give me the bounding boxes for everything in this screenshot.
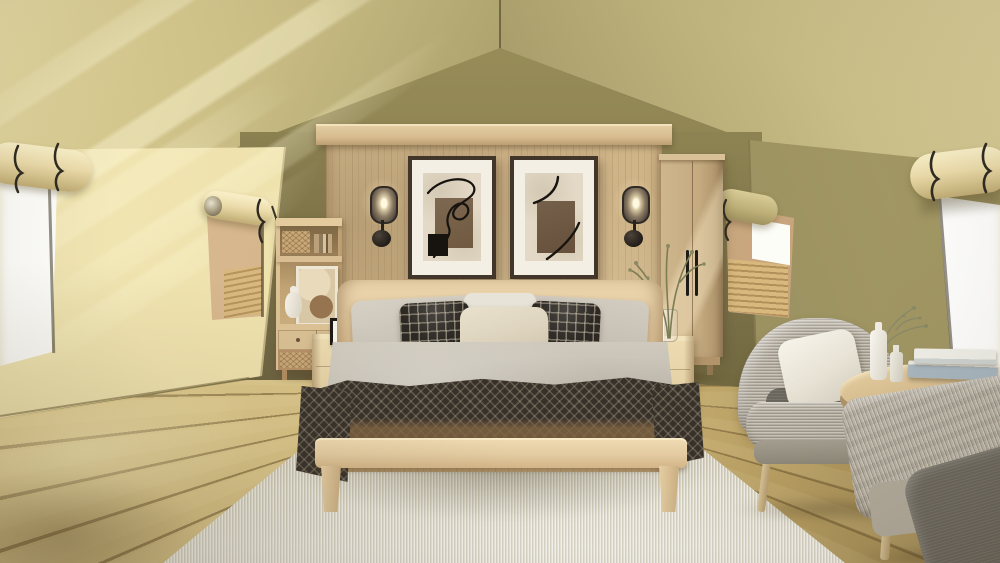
- art-right-arcs: [525, 173, 583, 261]
- flap-roll-end-cap: [204, 196, 222, 216]
- stacked-book-top: [914, 348, 996, 364]
- art-left-squiggle: [423, 173, 481, 261]
- wardrobe-leg: [707, 365, 713, 375]
- wall-sconce-left: [362, 180, 402, 246]
- hutch-cornice: [276, 218, 342, 226]
- tent-bedroom-scene: [0, 0, 1000, 563]
- ridge-seam: [499, 0, 501, 50]
- art-right-canvas: [525, 173, 583, 261]
- framed-print-on-hutch: [296, 266, 338, 326]
- armchair-front: [840, 380, 1000, 563]
- floor-shadow: [0, 470, 210, 563]
- white-bottle-tall: [870, 330, 887, 380]
- wardrobe-top-board: [659, 154, 725, 160]
- hutch-leg: [282, 370, 287, 380]
- flap-straps-1: [6, 140, 86, 200]
- abstract-art-right: [510, 156, 598, 279]
- sconce-wall-mount: [372, 230, 391, 247]
- drawer-knob: [296, 338, 300, 342]
- sconce-glass-shade: [370, 186, 398, 224]
- rattan-basket: [282, 231, 310, 253]
- window-left-2-deck-view: [224, 266, 262, 318]
- abstract-art-left: [408, 156, 496, 279]
- hutch-middle-shelf: [280, 262, 338, 324]
- white-bottle-short: [890, 352, 903, 382]
- sconce-glass-shade: [622, 186, 650, 224]
- flap-straps-4: [920, 142, 1000, 206]
- window-right-3-sky: [752, 219, 790, 266]
- bed-foot-rail: [315, 438, 687, 468]
- books-on-hutch: [314, 234, 332, 253]
- white-vase: [285, 292, 302, 318]
- crown-trim: [316, 124, 672, 145]
- hutch-upper-shelf: [280, 226, 338, 256]
- art-left-canvas: [423, 173, 481, 261]
- window-right-3-deck-view: [728, 259, 788, 317]
